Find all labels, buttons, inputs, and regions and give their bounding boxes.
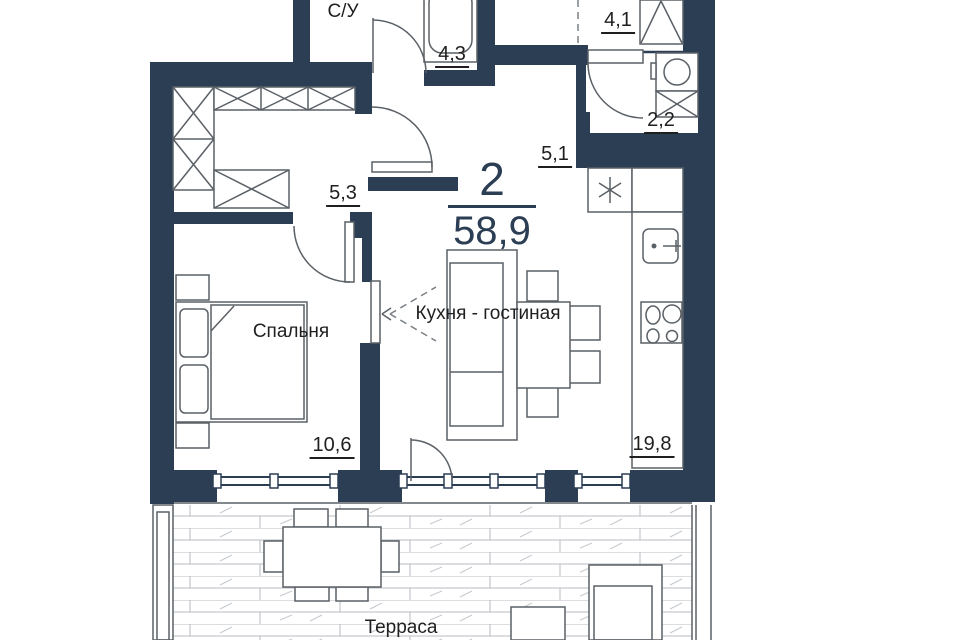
area-label-hallway: 5,3 [326,183,360,207]
terrace-railing-left [153,505,173,640]
chair [569,351,600,383]
walls [150,0,715,504]
area-label-bedroom: 10,6 [310,435,355,459]
unit-divider [448,205,536,208]
room-label-kitchen-living: Кухня - гостиная [416,304,561,324]
chair [336,509,368,527]
room-label-bathroom: С/У [327,2,358,22]
bedroom-door [294,222,354,282]
entry-wardrobe [640,0,683,44]
nightstand-bottom [176,423,209,448]
dining-table-set [517,271,600,417]
chair [569,306,600,340]
area-label-laundry: 2,2 [644,110,678,134]
chair [527,387,558,417]
chair [294,509,328,527]
area-label-kitchen-living: 19,8 [630,434,675,458]
bathroom-door [373,18,426,73]
chair [295,587,329,601]
terrace-railing-right [692,505,711,640]
room-label-terrace: Терраса [365,618,438,638]
chair [264,541,283,572]
unit-total-area: 58,9 [453,211,531,251]
sofa [447,250,517,440]
chair [527,271,558,301]
area-label-entry: 4,1 [601,10,635,34]
floor-plan: С/У 4,3 4,1 2,2 5,1 5,3 2 58,9 Спальня 1… [0,0,960,640]
terrace-lounge [589,565,662,640]
area-label-bathroom: 4,3 [435,44,469,68]
bed [176,302,307,422]
washing-machine [651,53,698,91]
unit-rooms-count: 2 [479,156,505,202]
room-label-bedroom: Спальня [253,322,329,342]
nightstand-top [176,275,209,300]
area-label-corridor: 5,1 [538,144,572,168]
chair [381,541,399,572]
unit-summary: 2 58,9 [448,156,536,251]
terrace-planter [511,607,565,640]
hallway-door [372,107,432,172]
kitchen-counter [588,168,683,468]
laundry-door [588,50,643,118]
terrace-table [283,527,381,587]
chair [336,587,368,601]
